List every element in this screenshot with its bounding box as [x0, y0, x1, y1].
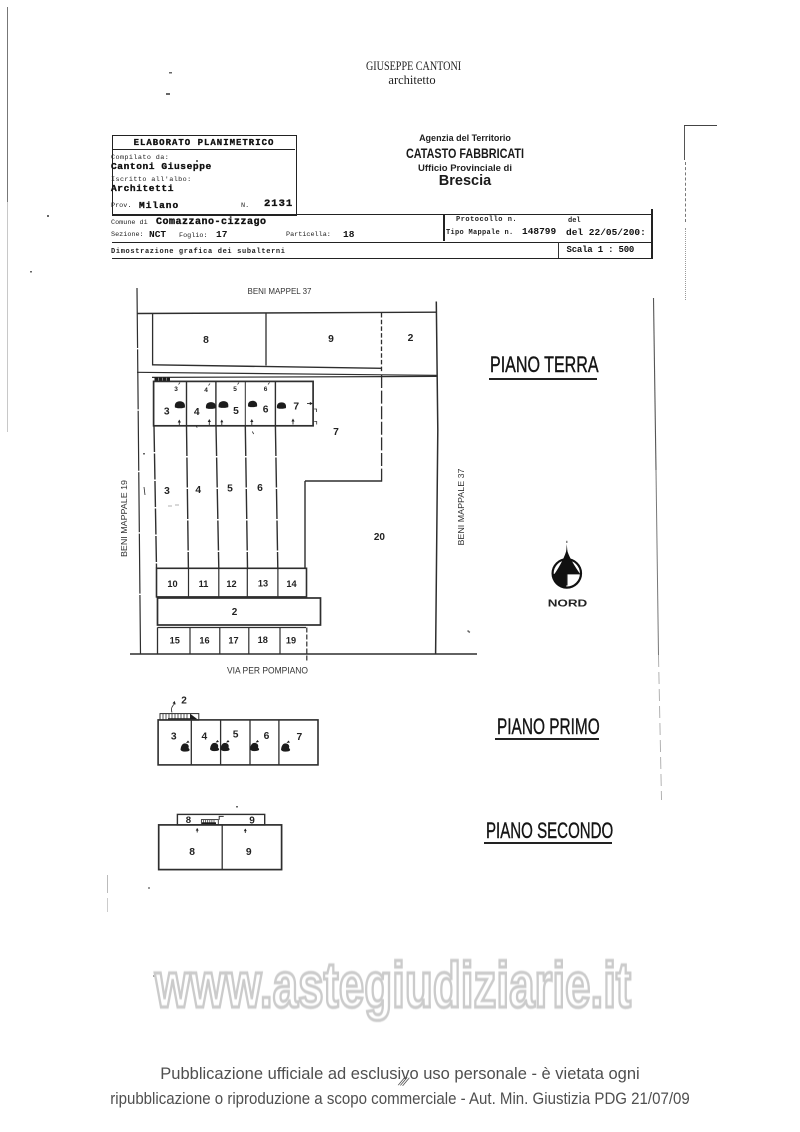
svg-text:9: 9: [246, 847, 252, 858]
svg-text:NORD: NORD: [548, 599, 588, 610]
svg-text:6: 6: [257, 483, 263, 494]
svg-text:18: 18: [258, 635, 268, 645]
svg-text:5: 5: [233, 406, 239, 417]
svg-text:19: 19: [286, 636, 296, 646]
svg-text:6: 6: [264, 731, 270, 742]
svg-text:3: 3: [171, 732, 177, 743]
svg-text:15: 15: [170, 636, 180, 646]
svg-text:6: 6: [264, 386, 268, 393]
svg-text:16: 16: [199, 636, 209, 646]
svg-text:7: 7: [333, 427, 339, 438]
svg-text:20: 20: [374, 532, 386, 543]
svg-text:5: 5: [227, 484, 233, 495]
svg-text:12: 12: [226, 579, 236, 589]
svg-text:4: 4: [204, 387, 208, 394]
svg-text:3: 3: [174, 386, 178, 393]
svg-text:8: 8: [203, 335, 209, 346]
svg-text:BENI MAPPALE 37: BENI MAPPALE 37: [457, 468, 466, 546]
svg-text:7: 7: [293, 402, 299, 413]
svg-text:6: 6: [263, 405, 269, 416]
svg-text:VIA PER POMPIANO: VIA PER POMPIANO: [227, 666, 308, 676]
svg-text:17: 17: [228, 636, 238, 646]
svg-text:3: 3: [164, 407, 170, 418]
svg-text:2: 2: [181, 696, 187, 707]
svg-text:BENI MAPPALE 19: BENI MAPPALE 19: [120, 479, 129, 557]
svg-text:14: 14: [286, 579, 297, 589]
svg-text:9: 9: [328, 334, 334, 345]
svg-text:4: 4: [194, 407, 200, 418]
svg-text:11: 11: [199, 579, 209, 589]
svg-text:2: 2: [408, 333, 414, 344]
svg-text:10: 10: [167, 579, 177, 589]
svg-text:13: 13: [258, 579, 268, 589]
svg-text:4: 4: [202, 732, 208, 743]
svg-text:8: 8: [189, 847, 195, 858]
svg-text:5: 5: [233, 730, 239, 741]
svg-text:3: 3: [164, 486, 170, 497]
svg-text:5: 5: [233, 386, 237, 393]
svg-text:7: 7: [297, 732, 303, 743]
svg-text:4: 4: [195, 485, 201, 496]
svg-text:2: 2: [232, 607, 238, 618]
svg-text:BENI MAPPEL 37: BENI MAPPEL 37: [248, 286, 312, 296]
